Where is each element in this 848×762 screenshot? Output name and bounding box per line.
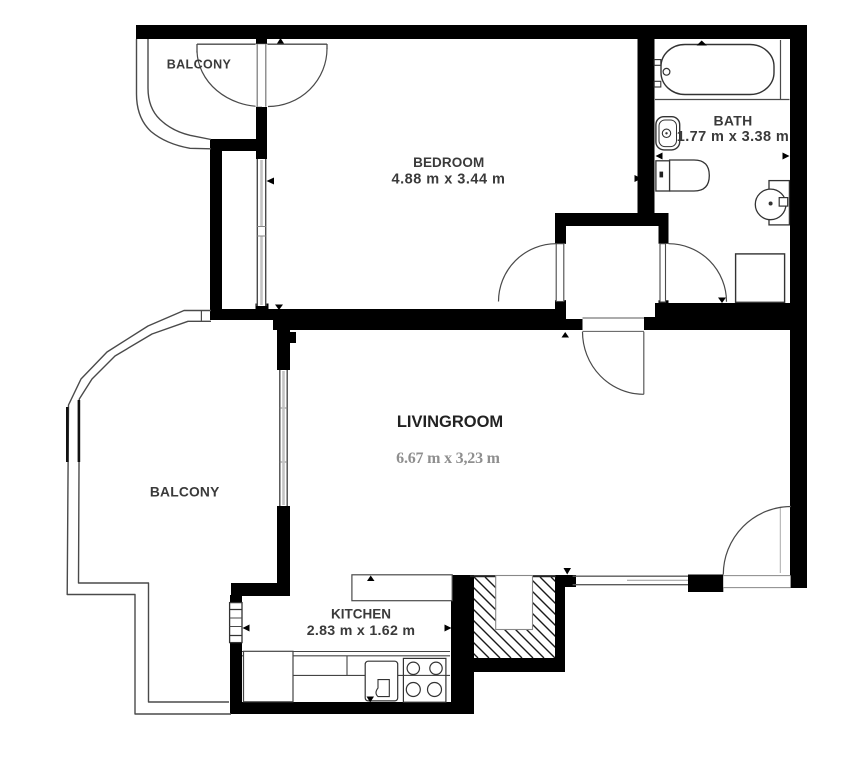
svg-text:6.67 m x 3,23 m: 6.67 m x 3,23 m xyxy=(396,450,501,467)
svg-text:4.88 m x 3.44 m: 4.88 m x 3.44 m xyxy=(392,172,506,188)
svg-text:2.83 m x 1.62 m: 2.83 m x 1.62 m xyxy=(307,623,416,639)
svg-text:BEDROOM: BEDROOM xyxy=(413,155,484,170)
svg-text:BATH: BATH xyxy=(713,113,752,129)
svg-text:BALCONY: BALCONY xyxy=(167,58,232,72)
svg-text:1.77 m x 3.38 m: 1.77 m x 3.38 m xyxy=(677,129,789,145)
svg-text:KITCHEN: KITCHEN xyxy=(331,607,391,622)
svg-text:LIVINGROOM: LIVINGROOM xyxy=(397,413,503,431)
svg-text:BALCONY: BALCONY xyxy=(150,485,220,500)
